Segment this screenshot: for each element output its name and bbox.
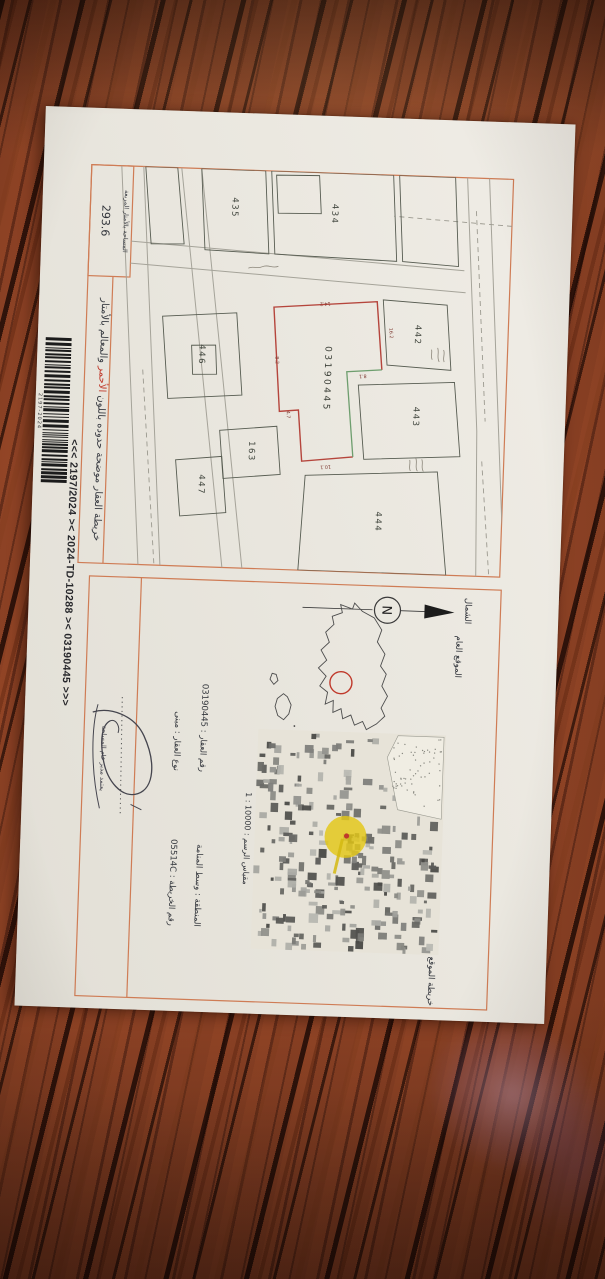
parcel-label-434: 434 (329, 204, 340, 225)
scale-value: 1 : 10000 (243, 792, 253, 831)
parcel-label-446: 446 (196, 344, 207, 365)
dimension-label: 8.1 (359, 372, 367, 378)
aerial-site-map (251, 729, 447, 955)
parcel-label-163: 163 (246, 441, 257, 462)
field-district-label: المنطقة (191, 898, 202, 927)
photo-of-cadastral-document: N (0, 0, 605, 1279)
country-outline-map (268, 600, 391, 742)
handwritten-squiggles (241, 265, 447, 472)
parcel-label-435: 435 (229, 197, 240, 218)
dimension-label: 10.1 (320, 463, 331, 469)
field-property-number-value: 03190445 (198, 684, 210, 728)
dimension-label: 4.7 (285, 411, 290, 419)
field-property-type-value: مبنى (172, 711, 183, 728)
field-district-value: وسط المنامة (193, 844, 205, 890)
parcel-label-447: 447 (195, 474, 206, 495)
street-map-art (108, 166, 518, 578)
cadastral-map-sheet: N (14, 106, 575, 1024)
parcel-label-442: 442 (412, 325, 423, 346)
parcel-map-panel-border (78, 165, 514, 577)
scale-label: مقياس الرسم (241, 838, 252, 885)
parcel-label-444: 444 (372, 511, 383, 532)
field-property-number-label: رقم العقار (197, 735, 208, 772)
dimension-label: 14.2 (320, 300, 331, 306)
field-map-number-label: رقم الخريطة (165, 880, 177, 926)
map-title-suffix: والمعالم بالأمتار (97, 298, 110, 363)
field-property-type-label: نوع العقار (171, 736, 182, 771)
map-title-red-word: الأحمر (96, 366, 108, 392)
dimension-label: 8.2 (273, 356, 278, 364)
north-arrow-icon: N (302, 594, 455, 625)
field-map-number-value: 05514C (167, 839, 178, 872)
dimension-label: 16.2 (387, 328, 393, 339)
location-highlight-circle (330, 671, 353, 694)
north-letter: N (378, 605, 393, 615)
roads (108, 166, 518, 578)
parcel-label-443: 443 (410, 407, 421, 428)
parcel-blocks (132, 167, 470, 576)
